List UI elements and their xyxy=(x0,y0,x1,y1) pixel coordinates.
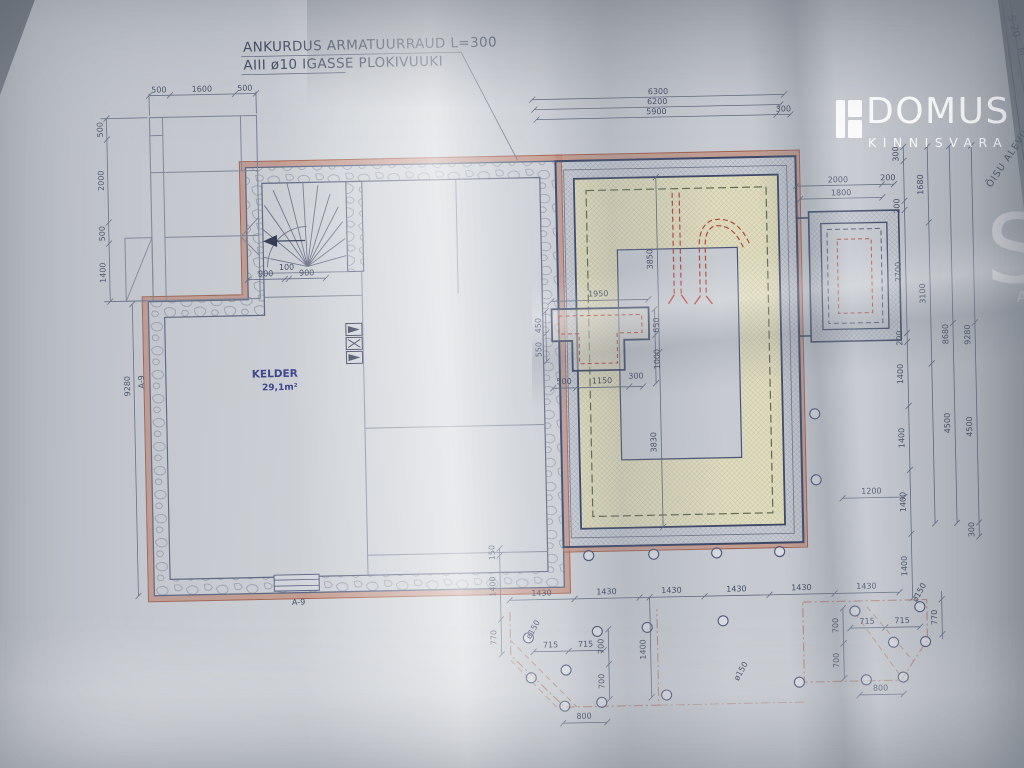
vent-triangle-1 xyxy=(348,326,360,333)
room-name: KELDER xyxy=(252,368,298,381)
dim-label: 1430 xyxy=(531,588,552,597)
stairs-arrow xyxy=(263,235,277,247)
dim-label: 770 xyxy=(489,630,498,645)
dim-label: 450 xyxy=(534,318,543,333)
dim-label: 1430 xyxy=(596,587,617,596)
section-label: A-9 xyxy=(137,375,146,388)
dim-line xyxy=(605,626,613,702)
stairs-fan xyxy=(262,181,347,268)
dim-line xyxy=(939,591,946,639)
post xyxy=(794,677,804,687)
dim-label: 800 xyxy=(576,712,591,721)
post xyxy=(561,665,571,675)
anchor-point xyxy=(775,546,785,556)
dim-line xyxy=(647,594,655,700)
post xyxy=(592,626,602,636)
dim-label: 715 xyxy=(894,616,909,625)
post xyxy=(850,606,860,616)
extension-dashed-red xyxy=(837,239,873,314)
room-area: 29,1m² xyxy=(262,383,298,394)
stair-stub-wall xyxy=(346,181,364,271)
dim-label: 800 xyxy=(873,683,888,692)
dim-label: 1400 xyxy=(488,576,497,597)
dim-label: 3100 xyxy=(918,283,927,304)
logo-subtitle: KINNISVARA xyxy=(868,135,1008,150)
section-label: A-9 xyxy=(292,598,305,607)
dim-label: 1400 xyxy=(638,639,647,660)
rebar-pipe-left-feet xyxy=(668,294,687,303)
post-diameter-label: ø150 xyxy=(911,581,929,603)
dim-label: 650 xyxy=(652,317,661,332)
dim-label: 2000 xyxy=(97,170,106,191)
post xyxy=(898,672,908,682)
dim-label: 3830 xyxy=(649,432,658,453)
window-symbol xyxy=(274,574,319,591)
dim-label: 9280 xyxy=(963,324,972,345)
dim-label: 715 xyxy=(859,617,874,626)
dim-label: 1430 xyxy=(726,584,747,593)
dim-label: 1680 xyxy=(916,174,925,195)
dim-label: 200 xyxy=(892,198,901,213)
dim-label: 200 xyxy=(895,330,904,345)
dim-label: 150 xyxy=(487,545,496,560)
dim-label: 1200 xyxy=(861,486,882,495)
dim-label: 2700 xyxy=(894,262,903,283)
dim-label: 1000 xyxy=(652,349,661,370)
watermark-partial-a: A xyxy=(1017,287,1024,306)
right-building xyxy=(548,148,905,552)
dim-label: 100 xyxy=(279,263,294,272)
dim-line xyxy=(840,605,848,681)
post xyxy=(560,701,570,711)
dim-label: 1400 xyxy=(900,556,909,577)
dim-label: 715 xyxy=(578,640,593,649)
dim-label: 500 xyxy=(237,84,252,93)
dim-label: 1430 xyxy=(661,586,682,595)
dim-label: 2000 xyxy=(828,175,849,184)
dim-label: 1800 xyxy=(831,188,852,197)
dim-label: 4500 xyxy=(965,416,974,437)
sheet-code: S-20 xyxy=(1005,14,1021,39)
dim-label: 300 xyxy=(967,522,976,537)
logo-wordmark: DOMUS xyxy=(866,91,1010,132)
anchor-point xyxy=(811,475,821,485)
post xyxy=(920,636,930,646)
dim-label: 900 xyxy=(258,269,273,278)
dim-label: 5900 xyxy=(646,107,667,116)
vent-triangle-2 xyxy=(348,354,360,361)
dim-label: 6200 xyxy=(647,97,668,106)
dim-line xyxy=(924,143,938,526)
inner-room-outline xyxy=(617,247,741,459)
anchor-point xyxy=(649,549,659,559)
post xyxy=(597,697,607,707)
annex-side-diagonal xyxy=(125,238,153,302)
dim-label: 715 xyxy=(543,640,558,649)
dim-label: 1400 xyxy=(898,492,907,513)
dim-label: 8680 xyxy=(941,324,950,345)
dim-label: 900 xyxy=(299,268,314,277)
dim-label: 1400 xyxy=(896,364,905,385)
rebar-pipe-right-feet xyxy=(694,296,712,304)
interior-walls xyxy=(262,178,548,578)
post xyxy=(718,616,728,626)
dim-label: 9280 xyxy=(123,376,132,397)
anchor-point xyxy=(712,548,722,558)
dim-label: 700 xyxy=(832,653,841,668)
post xyxy=(861,675,871,685)
anchor-point xyxy=(584,550,594,560)
extension-dashed-navy xyxy=(827,228,883,323)
post xyxy=(662,690,672,700)
post-diameter-label: ø150 xyxy=(524,619,542,641)
sheet-letter: M xyxy=(1015,46,1024,57)
dim-label: 700 xyxy=(831,618,840,633)
dim-label: 770 xyxy=(930,610,939,625)
dim-label: 300 xyxy=(776,104,791,113)
post xyxy=(526,673,536,683)
post-diameter-label: ø150 xyxy=(732,660,750,682)
dim-label: 200 xyxy=(880,173,895,182)
dim-label: 3850 xyxy=(645,249,654,270)
domus-window-icon xyxy=(834,97,864,141)
dim-label: 1400 xyxy=(98,262,107,283)
dim-label: 1430 xyxy=(791,583,812,592)
dim-label: 1400 xyxy=(897,428,906,449)
dim-line xyxy=(129,301,141,599)
dim-label: 500 xyxy=(556,377,571,386)
left-building xyxy=(122,109,570,602)
dim-label: 300 xyxy=(628,371,643,380)
post xyxy=(642,622,652,632)
dim-label: 700 xyxy=(597,674,606,689)
post xyxy=(888,637,898,647)
dim-label: 500 xyxy=(96,122,105,137)
anchor-point xyxy=(810,409,820,419)
stairs-arrow-tail xyxy=(277,240,305,241)
deck-right-outline xyxy=(803,600,929,683)
dim-label: 6300 xyxy=(648,87,669,96)
dim-label: 1600 xyxy=(192,84,213,93)
note-line-2: AIII ø10 IGASSE PLOKIVUUKI xyxy=(243,54,443,74)
dim-label: 500 xyxy=(151,85,166,94)
dim-label: 4500 xyxy=(943,413,952,434)
blueprint-photo: ANKURDUS ARMATUURRAUD L=300 AIII ø10 IGA… xyxy=(0,0,1024,768)
deck-connector-line xyxy=(659,702,805,705)
dim-label: 550 xyxy=(534,342,543,357)
dim-label: 1430 xyxy=(856,582,877,591)
domus-logo: DOMUS KINNISVARA xyxy=(834,97,1024,159)
dim-label: 1950 xyxy=(588,289,609,298)
dim-label: 500 xyxy=(98,226,107,241)
dim-label: 700 xyxy=(596,639,605,654)
dim-label: 1150 xyxy=(592,376,613,385)
extension-inner xyxy=(821,222,889,329)
